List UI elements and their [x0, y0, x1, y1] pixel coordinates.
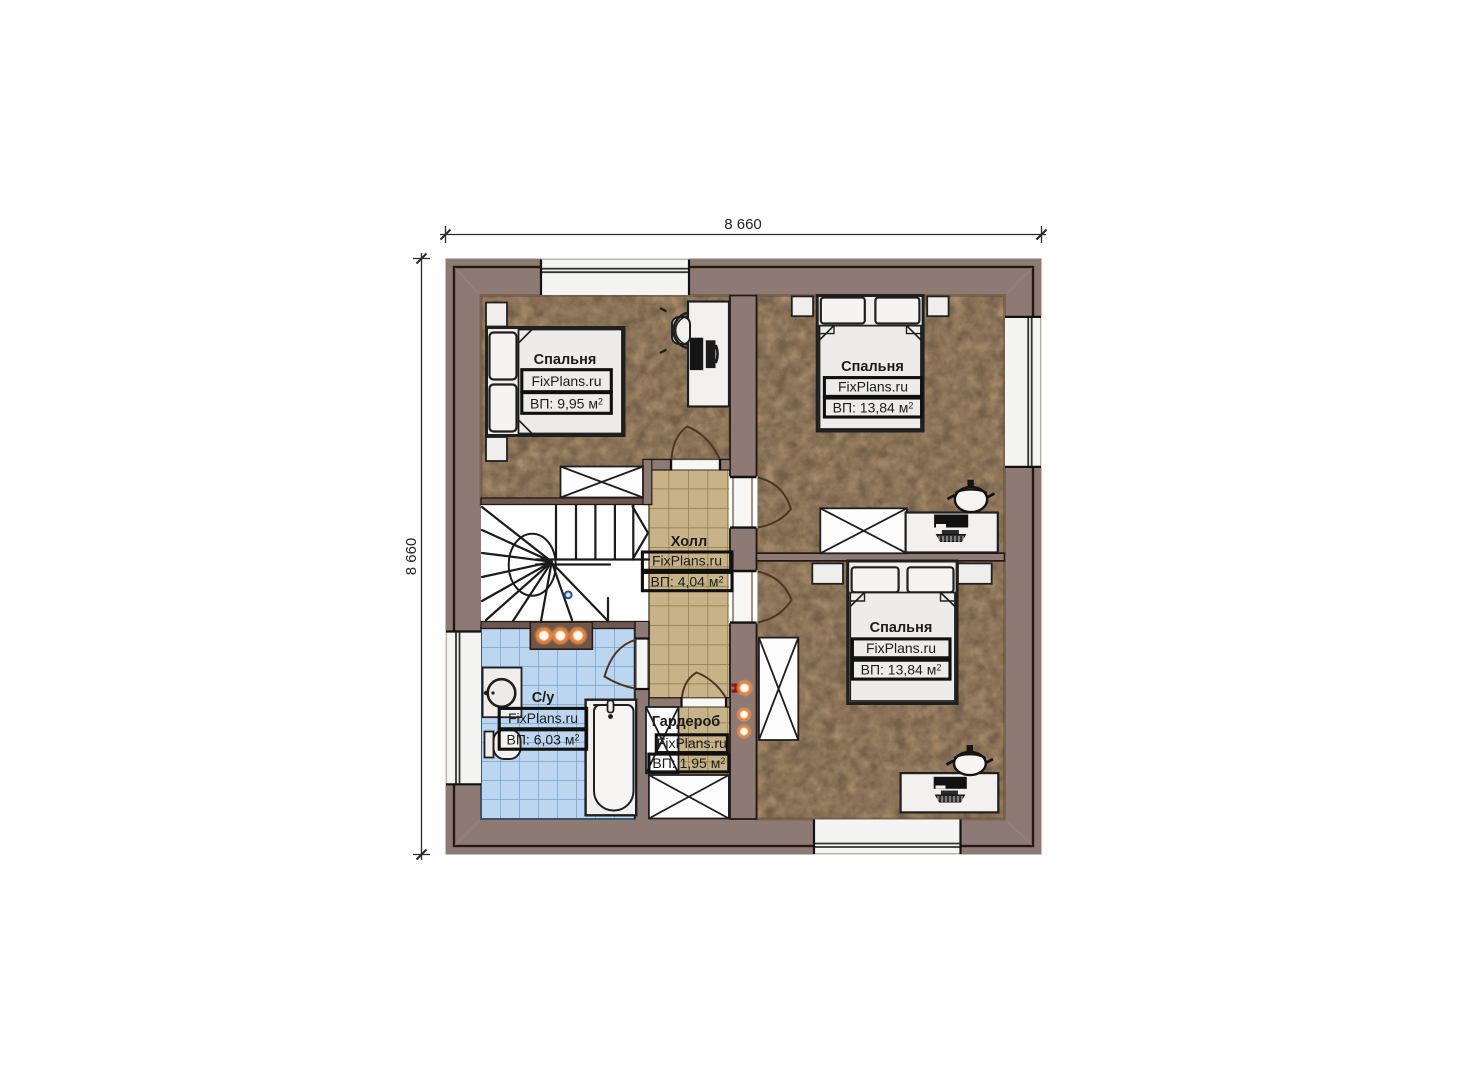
svg-text:FixPlans.ru: FixPlans.ru	[652, 553, 722, 569]
svg-text:Гардероб: Гардероб	[652, 714, 721, 730]
svg-text:FixPlans.ru: FixPlans.ru	[866, 640, 936, 656]
svg-text:Холл: Холл	[671, 534, 707, 550]
svg-text:FixPlans.ru: FixPlans.ru	[838, 379, 908, 395]
svg-text:ВП: 13,84 м2: ВП: 13,84 м2	[861, 662, 942, 678]
svg-text:8 660: 8 660	[724, 216, 762, 233]
svg-text:8 660: 8 660	[403, 538, 420, 576]
svg-text:Спальня: Спальня	[534, 352, 597, 368]
svg-text:FixPlans.ru: FixPlans.ru	[531, 373, 601, 389]
svg-text:FixPlans.ru: FixPlans.ru	[508, 710, 578, 726]
svg-text:ВП: 6,03 м2: ВП: 6,03 м2	[507, 732, 580, 748]
svg-text:ВП: 1,95 м2: ВП: 1,95 м2	[652, 755, 725, 771]
svg-text:С/у: С/у	[532, 690, 555, 706]
svg-text:Спальня: Спальня	[870, 620, 933, 636]
svg-text:FixPlans.ru: FixPlans.ru	[657, 735, 727, 751]
svg-text:ВП: 4,04 м2: ВП: 4,04 м2	[651, 574, 724, 590]
svg-text:ВП: 9,95 м2: ВП: 9,95 м2	[530, 396, 603, 412]
svg-text:Спальня: Спальня	[841, 359, 904, 375]
svg-text:ВП: 13,84 м2: ВП: 13,84 м2	[833, 400, 914, 416]
